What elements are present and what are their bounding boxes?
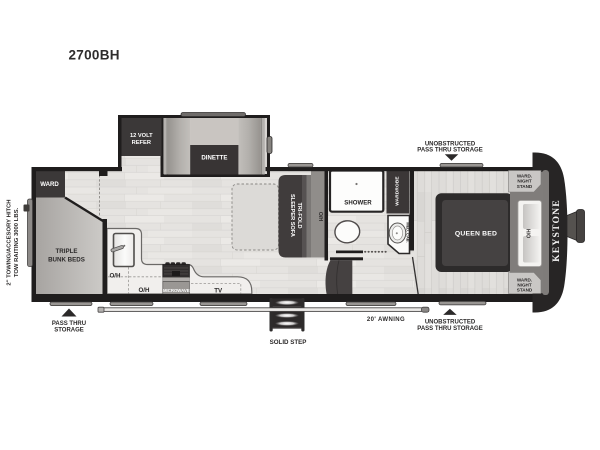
svg-text:SLEEPER SOFA: SLEEPER SOFA	[289, 194, 295, 237]
svg-text:2" TOWING/ACCESORY HITCH: 2" TOWING/ACCESORY HITCH	[7, 199, 13, 285]
svg-text:STORAGE: STORAGE	[54, 328, 84, 334]
svg-text:TRI-FOLD: TRI-FOLD	[296, 202, 302, 228]
svg-text:PASS THRU: PASS THRU	[52, 321, 86, 327]
svg-text:STAND: STAND	[517, 288, 533, 293]
svg-text:O/H: O/H	[317, 212, 323, 222]
svg-text:TRIPLE: TRIPLE	[55, 248, 77, 255]
svg-text:UNOBSTRUCTED: UNOBSTRUCTED	[425, 320, 476, 326]
svg-text:20' AWNING: 20' AWNING	[367, 317, 405, 323]
svg-text:WARD: WARD	[40, 181, 59, 188]
svg-text:2700BH: 2700BH	[69, 48, 120, 63]
svg-text:REFER: REFER	[132, 140, 151, 146]
svg-text:O/H: O/H	[109, 272, 121, 279]
svg-text:BUNK BEDS: BUNK BEDS	[48, 257, 85, 264]
svg-text:MICROWAVE: MICROWAVE	[163, 288, 190, 293]
svg-text:UNOBSTRUCTED: UNOBSTRUCTED	[425, 141, 476, 147]
svg-text:O/H: O/H	[138, 287, 150, 294]
svg-text:KEYSTONE: KEYSTONE	[551, 199, 562, 262]
svg-text:SOLID STEP: SOLID STEP	[270, 339, 307, 346]
svg-text:12 VOLT: 12 VOLT	[130, 133, 153, 139]
svg-text:PASS THRU STORAGE: PASS THRU STORAGE	[417, 326, 482, 332]
svg-text:TOW RAITING 3000 LBS.: TOW RAITING 3000 LBS.	[14, 207, 20, 277]
svg-text:PASS THRU STORAGE: PASS THRU STORAGE	[417, 148, 482, 154]
svg-text:QUEEN BED: QUEEN BED	[455, 231, 497, 238]
svg-text:SHOWER: SHOWER	[344, 200, 372, 207]
svg-text:DINETTE: DINETTE	[201, 155, 227, 162]
svg-text:WARDROBE: WARDROBE	[395, 176, 400, 205]
svg-text:O/H: O/H	[527, 229, 533, 238]
svg-text:TV: TV	[214, 287, 223, 294]
svg-text:STAND: STAND	[517, 184, 533, 189]
